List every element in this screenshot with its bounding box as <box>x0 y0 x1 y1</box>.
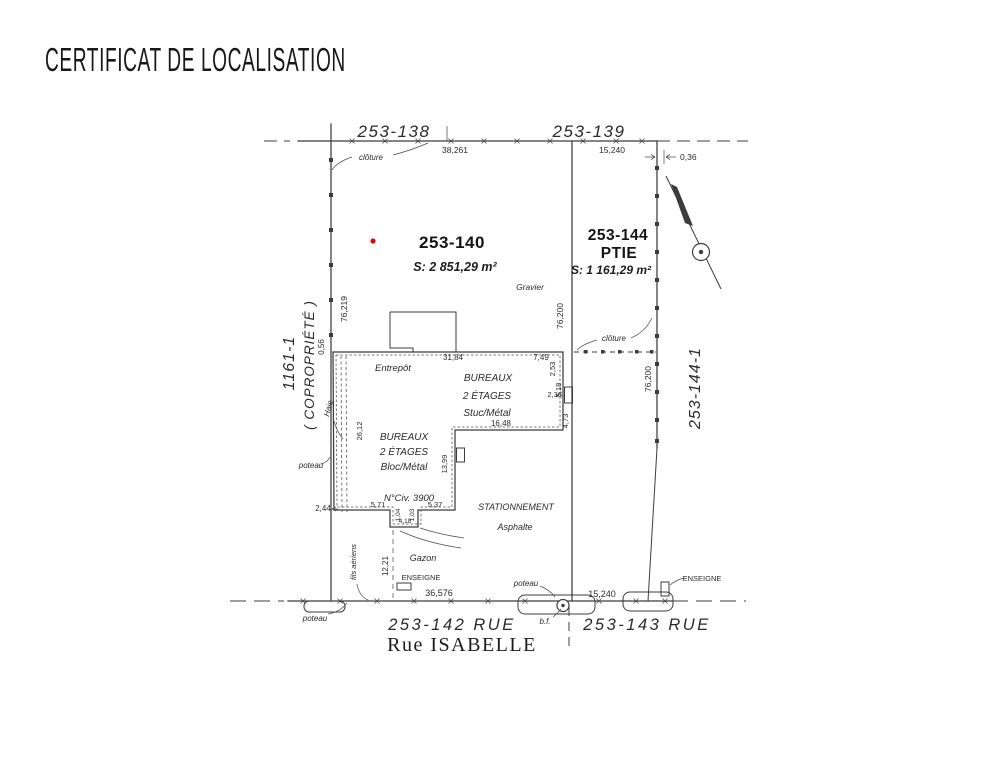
wires-leader <box>357 584 368 600</box>
plan-labels: 253-138 253-139 38,261 15,240 clôture 0,… <box>281 122 721 656</box>
sign-left-rect <box>397 583 411 590</box>
stairs-upper <box>565 387 573 403</box>
meas-244: 2,44 <box>315 504 331 513</box>
meas-236: 2,36 <box>547 390 562 399</box>
hedge-line <box>341 356 347 512</box>
meas-418: 4,18 <box>399 518 412 525</box>
meas-537: 5,37 <box>428 500 443 509</box>
meas-76200-mid: 76,200 <box>555 303 565 329</box>
sign-right-rect <box>661 582 669 596</box>
office1-line1: BUREAUX <box>464 373 513 384</box>
survey-tick-marks <box>301 139 668 604</box>
lot-144-1-label: 253-144-1 <box>687 347 704 430</box>
office2-line3: Bloc/Métal <box>381 462 428 473</box>
street-name-label: Rue ISABELLE <box>387 634 537 656</box>
meas-15240-bottom: 15,240 <box>588 589 616 599</box>
lot-144-ptie: PTIE <box>601 245 637 262</box>
north-arrow-dot <box>699 250 703 254</box>
lot-144-area: S: 1 161,29 m² <box>571 263 652 277</box>
lot-142-rue-label: 253-142 RUE <box>387 616 515 634</box>
lot-140-area: S: 2 851,29 m² <box>413 260 497 274</box>
meas-253: 2,53 <box>548 362 557 377</box>
driveway-leader-lines <box>400 528 464 548</box>
lawn-label: Gazon <box>410 553 437 563</box>
copropriete-label: ( COPROPRIÉTÉ ) <box>302 300 317 430</box>
meas-15240-top: 15,240 <box>599 145 625 155</box>
meas-36576: 36,576 <box>425 588 453 598</box>
north-arrow <box>666 176 721 289</box>
fence-mid-label: clôture <box>602 334 627 343</box>
sign-left-label: ENSEIGNE <box>402 573 441 582</box>
lot-140-label: 253-140 <box>419 233 485 252</box>
parking-label: STATIONNEMENT <box>478 502 555 512</box>
red-marker-dot <box>370 238 375 243</box>
lot-138-label: 253-138 <box>357 122 431 141</box>
offset-ne-arrows <box>645 150 676 164</box>
meas-749: 7,49 <box>533 353 549 362</box>
survey-plan: 253-138 253-139 38,261 15,240 clôture 0,… <box>0 0 1001 768</box>
wires-label: fils aériens <box>349 544 358 580</box>
meas-2612: 26,12 <box>355 422 364 441</box>
canopy-outline <box>390 312 456 352</box>
meas-571: 5,71 <box>371 500 386 509</box>
hydrant-dot <box>561 604 564 607</box>
meas-38261: 38,261 <box>442 145 468 155</box>
pole-bottom-label: poteau <box>302 614 328 623</box>
hydrant-label: b.f. <box>539 617 550 626</box>
lot-143-rue-label: 253-143 RUE <box>582 616 710 634</box>
sign-right-label: ENSEIGNE <box>683 574 722 583</box>
meas-036: 0,36 <box>680 152 697 162</box>
meas-76200-east: 76,200 <box>643 366 653 392</box>
meas-76219: 76,219 <box>339 296 349 322</box>
east-boundary-diagonal <box>648 448 657 601</box>
lot-1161-label: 1161-1 <box>281 336 298 391</box>
meas-1399: 13,99 <box>440 455 449 474</box>
street-features <box>304 582 673 614</box>
warehouse-label: Entrepôt <box>375 363 411 374</box>
meas-1221: 12,21 <box>381 555 390 576</box>
stairs-lower <box>457 448 465 462</box>
meas-473: 4,73 <box>561 414 570 429</box>
meas-056: 0,56 <box>317 339 326 355</box>
office2-line2: 2 ÉTAGES <box>379 445 428 458</box>
lot-144-label: 253-144 <box>588 227 648 244</box>
meas-3184: 31,84 <box>443 353 464 362</box>
asphalt-label: Asphalte <box>496 522 532 532</box>
office1-line2: 2 ÉTAGES <box>462 389 511 402</box>
office2-line1: BUREAUX <box>380 432 429 443</box>
fence-top-label: clôture <box>359 153 384 162</box>
building-hatch-wall <box>336 355 560 524</box>
north-arrow-needle <box>671 184 693 226</box>
pole-left-label: poteau <box>298 461 324 470</box>
meas-1648: 16,48 <box>491 419 512 428</box>
building-outer-wall <box>333 352 563 527</box>
pole-mid-label: poteau <box>513 579 539 588</box>
gravier-label: Gravier <box>516 282 545 292</box>
office1-line3: Stuc/Métal <box>463 408 511 419</box>
hydrant-leader <box>553 609 561 617</box>
lot-139-label: 253-139 <box>552 122 626 141</box>
